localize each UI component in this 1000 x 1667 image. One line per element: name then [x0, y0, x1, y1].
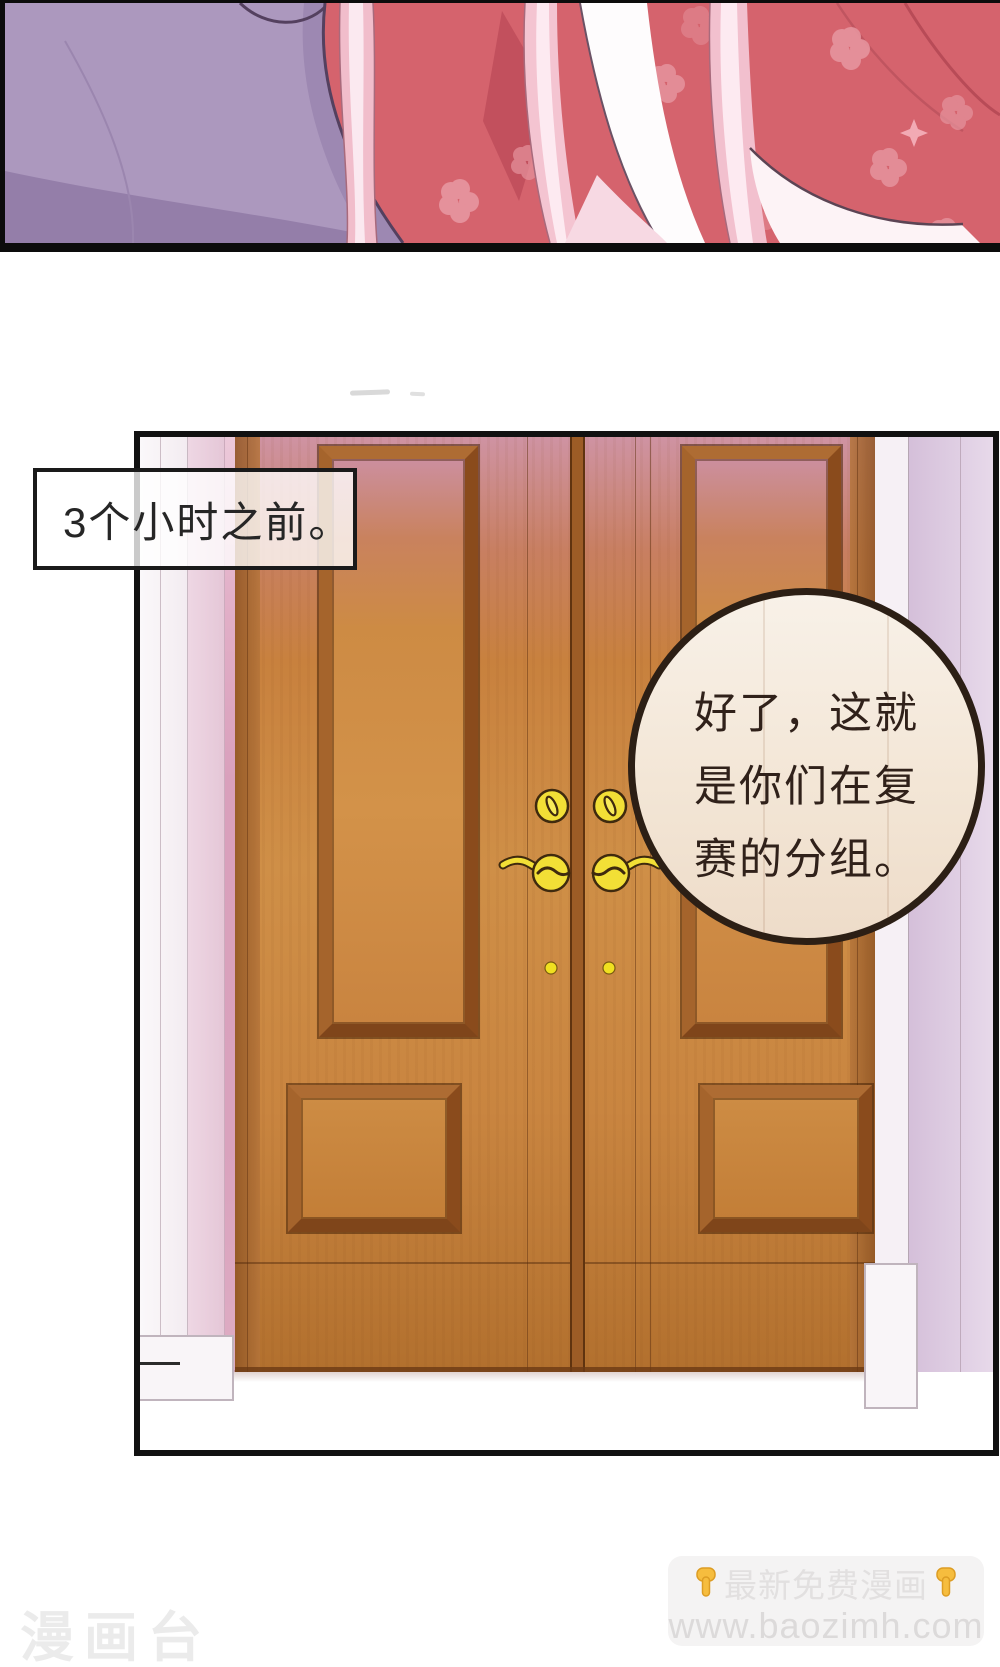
narration-caption-box: 3个小时之前。: [33, 468, 357, 570]
speech-bubble: 好了，这就 是你们在复 赛的分组。: [628, 588, 985, 945]
hand-pointing-down-icon: [694, 1567, 718, 1599]
illustration-artwork: [5, 3, 1000, 243]
caption-text: 3个小时之前。: [63, 489, 352, 550]
speech-bubble-text: 好了，这就 是你们在复 赛的分组。: [635, 595, 978, 897]
left-moulding-base: [134, 1335, 234, 1401]
site-watermark: 漫画台: [20, 1593, 212, 1667]
promo-watermark-badge: 最新免费漫画 www.baozimh.com: [668, 1556, 984, 1646]
left-door-stud: [545, 962, 557, 974]
hand-pointing-down-icon: [934, 1567, 958, 1599]
ink-smudge: [350, 389, 390, 395]
promo-url: www.baozimh.com: [668, 1609, 983, 1643]
ink-smudge: [410, 392, 425, 397]
comic-page: 3个小时之前。 好了，这就 是你们在复 赛的分组。 漫画台 最新免费漫画 www…: [0, 0, 1000, 1667]
promo-text: 最新免费漫画: [724, 1559, 928, 1607]
right-moulding-base: [864, 1263, 918, 1409]
top-illustration-panel: [0, 0, 1000, 252]
right-door-stud: [603, 962, 615, 974]
door-scene-panel: [134, 431, 999, 1456]
